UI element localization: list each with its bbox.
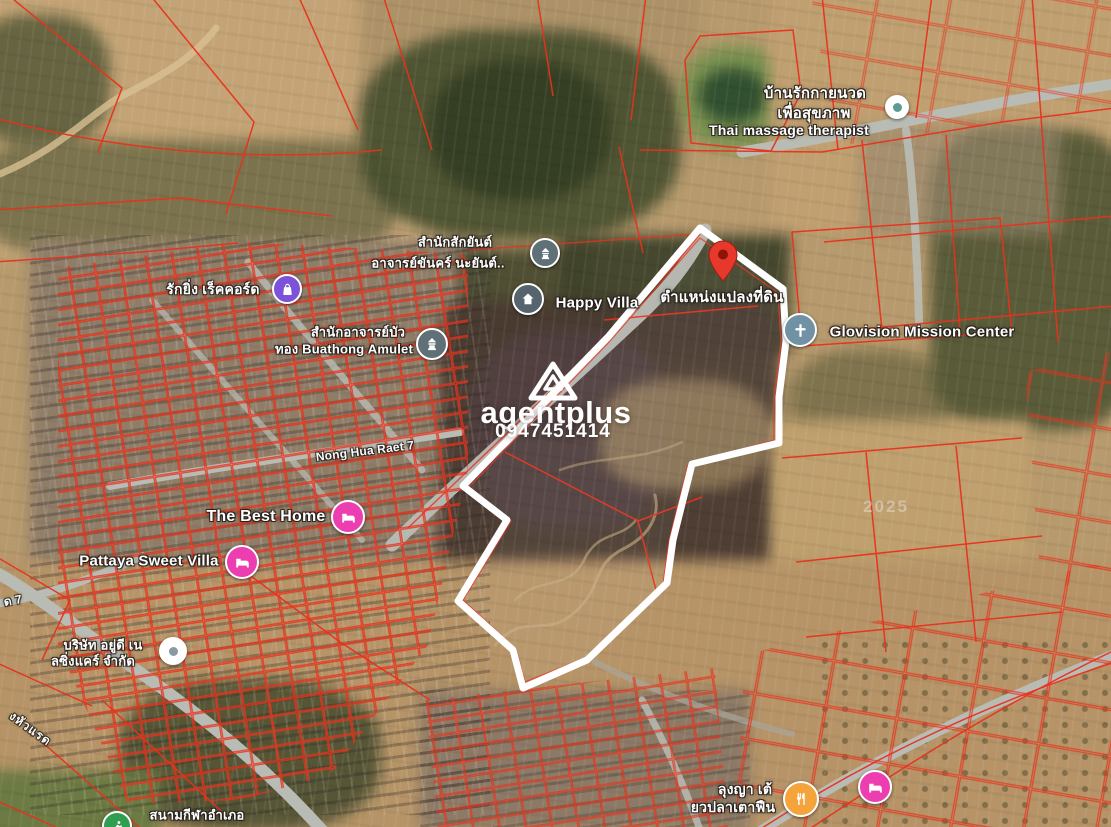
plot-pin-icon[interactable]	[708, 240, 738, 282]
satellite-map[interactable]: สำนักสักยันต์ อาจารย์ขันคร์ นะยันต์.. Ha…	[0, 0, 1111, 827]
imagery-year-watermark: 2025	[863, 497, 909, 517]
villa-house-icon[interactable]	[512, 283, 544, 315]
poi-label-happy-villa[interactable]: Happy Villa	[556, 295, 639, 312]
poi-label-lungya-line2[interactable]: ยวปลาเตาฟืน	[691, 797, 776, 819]
road-label-d7: ด 7	[2, 590, 23, 612]
poi-label-glovision[interactable]: Glovision Mission Center	[830, 324, 1015, 341]
poi-label-massage-line3[interactable]: Thai massage therapist	[709, 122, 869, 138]
church-cross-icon[interactable]	[783, 313, 817, 347]
shrine-icon[interactable]	[416, 328, 448, 360]
restaurant-icon[interactable]	[783, 781, 819, 817]
poi-label-pattaya-sweet-villa[interactable]: Pattaya Sweet Villa	[79, 553, 218, 570]
place-dot-inner	[169, 647, 178, 656]
poi-label-sak-yant-line1[interactable]: สำนักสักยันต์	[418, 232, 492, 253]
poi-label-best-home[interactable]: The Best Home	[206, 508, 325, 526]
poi-label-sak-yant-line2[interactable]: อาจารย์ขันคร์ นะยันต์..	[371, 253, 504, 274]
lodging-bed-icon[interactable]	[858, 770, 892, 804]
place-dot-icon[interactable]	[885, 95, 909, 119]
poi-label-buathong-line2[interactable]: ทอง Buathong Amulet	[275, 339, 413, 360]
watermark-phone: 0947451414	[495, 421, 611, 443]
poi-label-rak-ying[interactable]: รักยิ่ง เร็คคอร์ด	[166, 279, 259, 301]
place-dot-inner	[893, 103, 902, 112]
place-dot-icon[interactable]	[159, 637, 187, 665]
poi-label-yudee-line2[interactable]: ลซิ่งแคร์ จำกัด	[51, 651, 135, 672]
shopping-bag-icon[interactable]	[272, 274, 302, 304]
plot-pin-label: ตำแหน่งแปลงที่ดิน	[660, 285, 783, 309]
poi-label-sports-field[interactable]: สนามกีฬาอำเภอ	[150, 805, 245, 826]
lodging-bed-icon[interactable]	[225, 545, 259, 579]
lodging-bed-icon[interactable]	[331, 500, 365, 534]
shrine-icon[interactable]	[530, 238, 560, 268]
